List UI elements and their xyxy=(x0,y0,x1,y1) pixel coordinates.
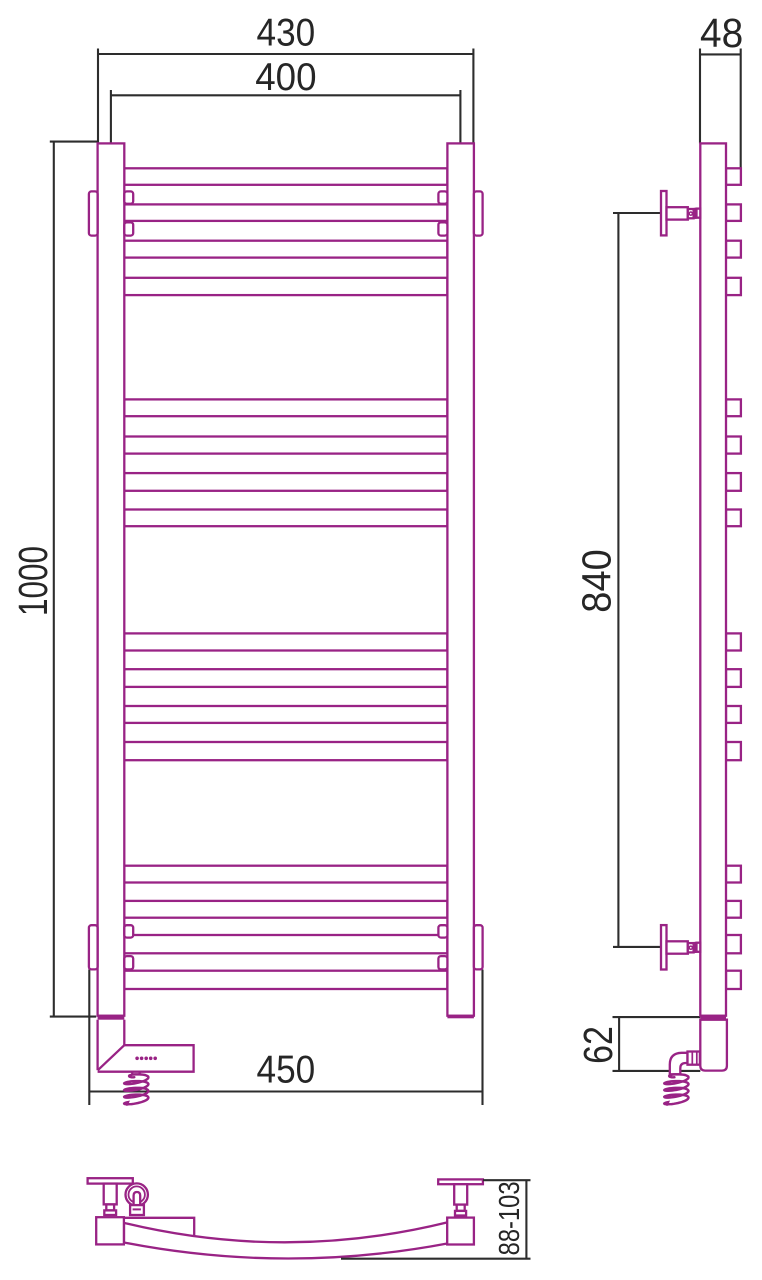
svg-text:62: 62 xyxy=(575,1026,621,1064)
svg-text:430: 430 xyxy=(257,11,316,54)
svg-text:840: 840 xyxy=(574,549,620,612)
svg-text:400: 400 xyxy=(255,56,316,99)
svg-text:450: 450 xyxy=(257,1049,316,1092)
svg-text:88-103: 88-103 xyxy=(494,1181,526,1255)
svg-text:1000: 1000 xyxy=(10,546,56,616)
svg-text:48: 48 xyxy=(700,10,743,56)
